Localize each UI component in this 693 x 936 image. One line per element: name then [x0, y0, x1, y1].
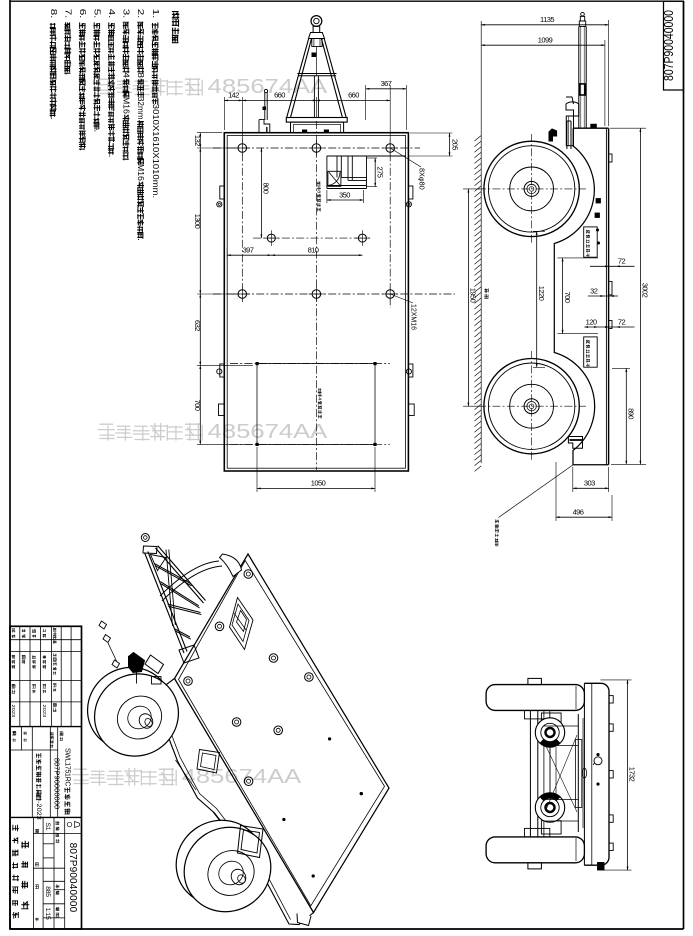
svg-text:4.: 4. [107, 9, 116, 22]
svg-text:632: 632 [193, 320, 202, 331]
svg-text:8: 8 [136, 72, 145, 78]
svg-text:1.: 1. [151, 9, 160, 22]
svg-text:M16: M16 [122, 97, 131, 115]
svg-text:397: 397 [243, 246, 254, 255]
svg-text:32mm: 32mm [136, 97, 145, 120]
svg-text:8Xφ80: 8Xφ80 [418, 168, 425, 190]
svg-text:1220: 1220 [537, 286, 546, 301]
svg-text:.: . [93, 129, 102, 132]
svg-text:485674AA: 485674AA [201, 75, 328, 98]
svg-text:1135: 1135 [540, 15, 554, 24]
svg-text:350: 350 [339, 190, 350, 199]
svg-text:7.: 7. [63, 9, 72, 22]
svg-text:-2023: -2023 [35, 801, 42, 820]
svg-text:1950: 1950 [469, 288, 478, 303]
svg-text:700: 700 [563, 292, 572, 303]
svg-text:8.: 8. [49, 9, 58, 22]
svg-text:3.: 3. [122, 9, 131, 22]
svg-text:.: . [63, 72, 72, 75]
svg-text:120: 120 [586, 317, 597, 326]
svg-text:810: 810 [308, 246, 319, 255]
svg-text:5.: 5. [93, 9, 102, 22]
svg-text:4: 4 [318, 397, 323, 401]
svg-text:32: 32 [590, 286, 598, 295]
svg-text:890: 890 [627, 408, 636, 419]
svg-text:700: 700 [193, 399, 202, 410]
svg-text:2023: 2023 [42, 705, 47, 718]
svg-text:12XM16: 12XM16 [410, 304, 417, 330]
svg-text:132: 132 [193, 135, 202, 146]
svg-text:.: . [136, 238, 145, 241]
svg-text:205: 205 [451, 139, 460, 150]
svg-text:S1: S1 [44, 823, 51, 831]
svg-text:72: 72 [618, 317, 626, 326]
svg-text:SWL1751RC: SWL1751RC [63, 748, 70, 786]
svg-text:3010X1610X1010mm.: 3010X1610X1010mm. [151, 104, 160, 198]
svg-text:660: 660 [348, 91, 359, 100]
svg-text:.: . [49, 116, 58, 119]
svg-text:496: 496 [573, 508, 584, 517]
svg-text:2023: 2023 [11, 705, 16, 718]
svg-text:2.: 2. [136, 9, 145, 22]
svg-text:800: 800 [262, 182, 271, 193]
svg-text:303: 303 [584, 479, 595, 488]
svg-text:807P90040000: 807P90040000 [661, 10, 676, 81]
svg-text:485674AA: 485674AA [201, 420, 328, 443]
svg-text:1099: 1099 [538, 36, 553, 45]
svg-text:6.: 6. [78, 9, 87, 22]
svg-text:72: 72 [618, 257, 626, 266]
svg-text:.: . [78, 148, 87, 151]
svg-text:807P90000000: 807P90000000 [53, 758, 62, 809]
svg-text:1050: 1050 [311, 479, 326, 488]
svg-text:1732: 1732 [628, 767, 637, 782]
svg-text:367: 367 [381, 79, 392, 88]
svg-text:3002: 3002 [641, 283, 650, 298]
svg-text:M16: M16 [136, 164, 145, 182]
svg-text:885: 885 [44, 886, 51, 897]
svg-text:4: 4 [122, 72, 131, 78]
svg-text:.: . [122, 158, 131, 161]
svg-text:1:15: 1:15 [44, 907, 51, 920]
svg-text:485674AA: 485674AA [175, 765, 302, 788]
svg-text:8: 8 [317, 190, 322, 194]
svg-text:1300: 1300 [193, 214, 202, 229]
svg-text:.: . [107, 154, 116, 157]
svg-text:807P90040000: 807P90040000 [67, 843, 78, 913]
svg-text:275: 275 [375, 167, 384, 178]
